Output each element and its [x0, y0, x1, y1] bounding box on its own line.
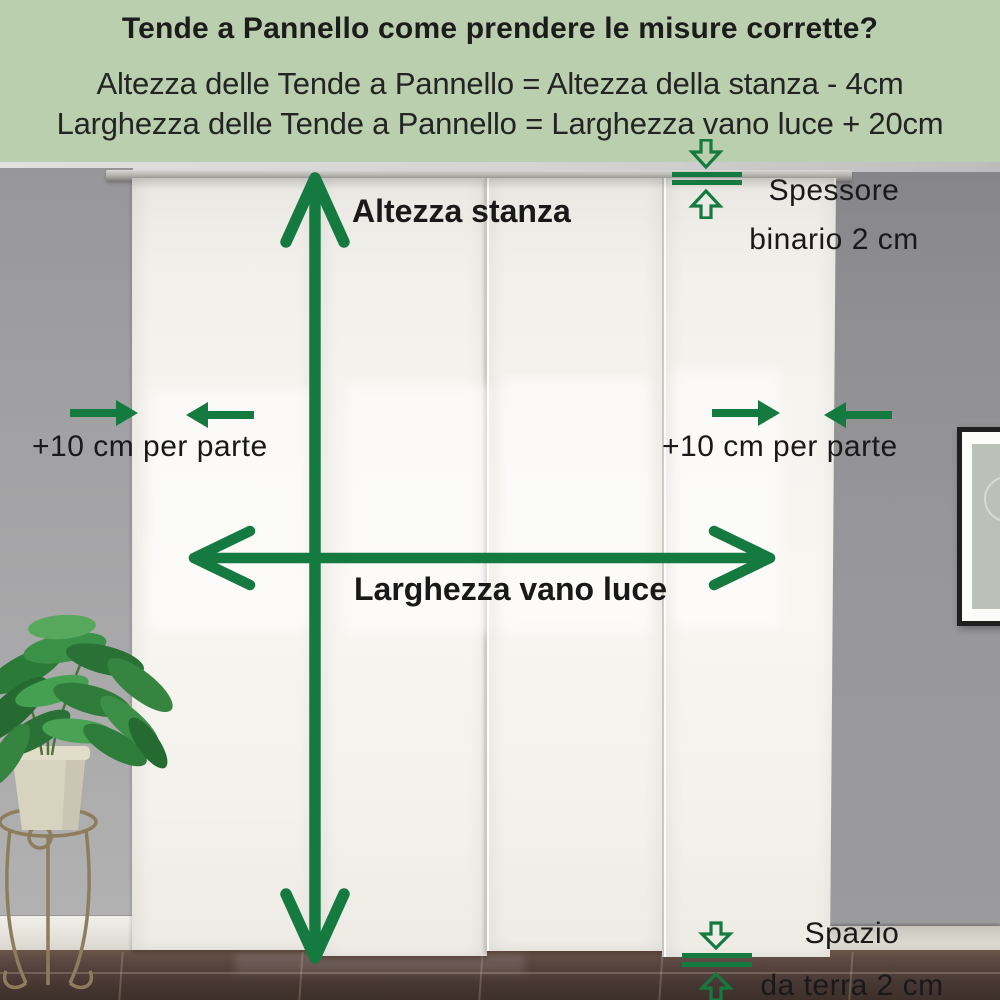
- floor-gap-line1: Spazio: [742, 908, 962, 960]
- floor-gap-label: Spazio da terra 2 cm: [742, 908, 962, 1000]
- height-formula: Altezza delle Tende a Pannello = Altezza…: [0, 66, 1000, 102]
- potted-plant: [0, 615, 190, 1000]
- header-band: Tende a Pannello come prendere le misure…: [0, 0, 1000, 162]
- page-title: Tende a Pannello come prendere le misure…: [0, 12, 1000, 46]
- framed-artwork: [972, 444, 1000, 609]
- plant-stand: [0, 808, 96, 987]
- side-allowance-label-right: +10 cm per parte: [662, 430, 898, 464]
- track-thickness-line2: binario 2 cm: [714, 215, 954, 264]
- track-thickness-line1: Spessore: [714, 166, 954, 215]
- opening-width-label: Larghezza vano luce: [354, 570, 667, 608]
- arrow-right-icon: [70, 400, 138, 426]
- width-formula: Larghezza delle Tende a Pannello = Largh…: [0, 106, 1000, 142]
- arrow-right-icon: [712, 400, 780, 426]
- picture-frame: [957, 427, 1000, 626]
- floor-gap-line2: da terra 2 cm: [742, 960, 962, 1000]
- measurement-infographic: Tende a Pannello come prendere le misure…: [0, 0, 1000, 1000]
- artwork-circle: [984, 476, 1000, 522]
- side-allowance-label-left: +10 cm per parte: [32, 430, 268, 464]
- arrow-left-icon: [186, 402, 254, 428]
- track-thickness-label: Spessore binario 2 cm: [714, 166, 954, 264]
- room-height-label: Altezza stanza: [352, 192, 571, 230]
- arrow-left-icon: [824, 402, 892, 428]
